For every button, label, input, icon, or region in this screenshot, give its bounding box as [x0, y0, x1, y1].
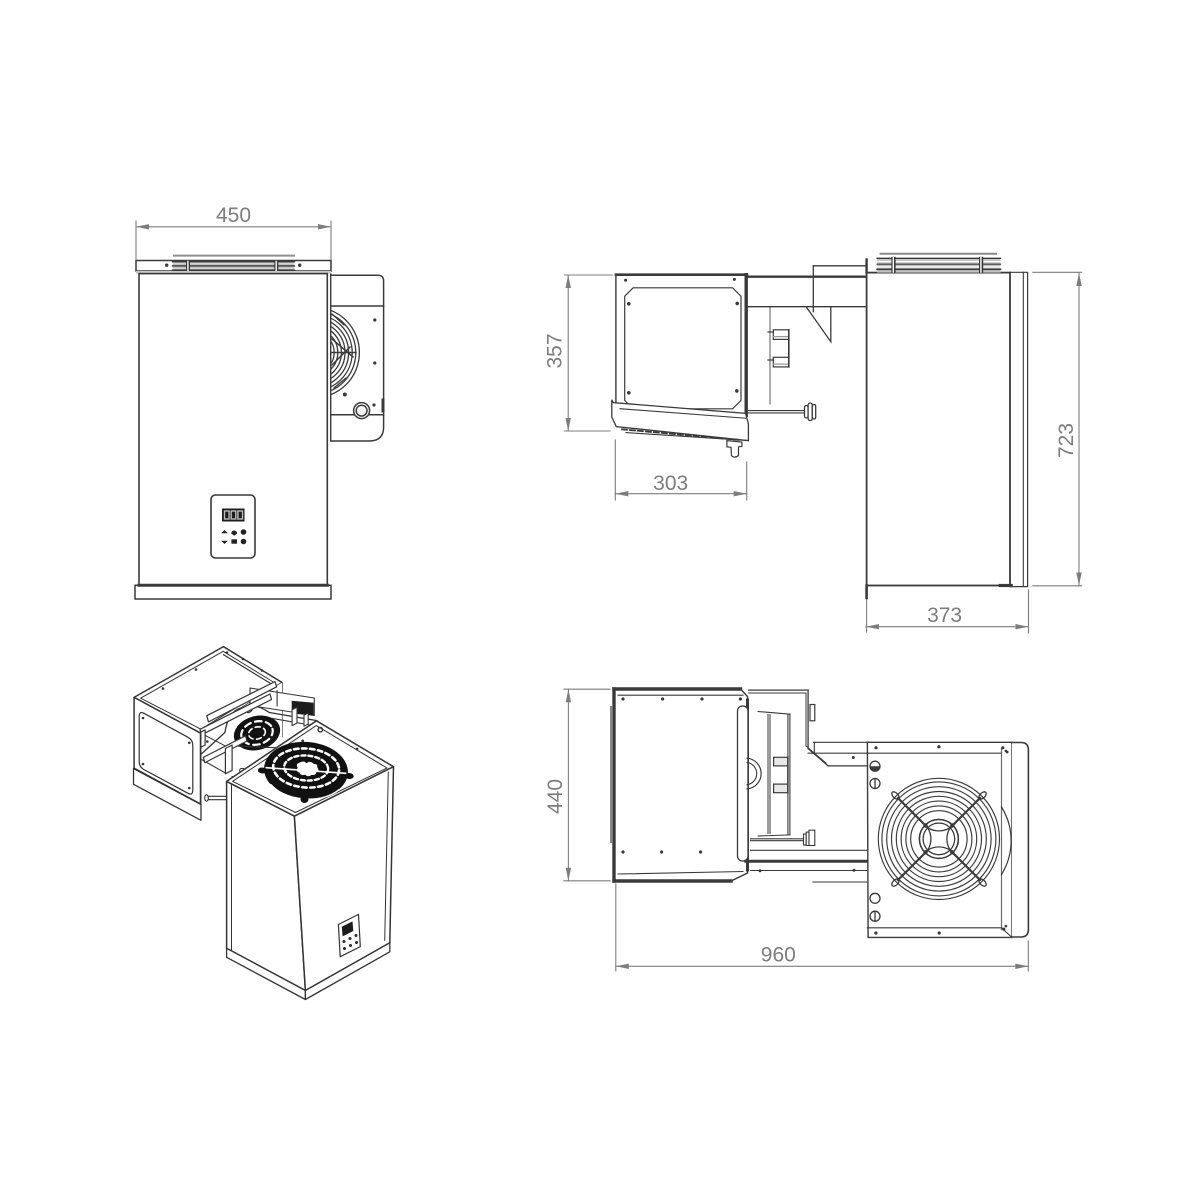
svg-text:303: 303	[653, 472, 688, 495]
svg-text:723: 723	[1055, 423, 1078, 458]
svg-text:373: 373	[927, 604, 962, 627]
svg-text:440: 440	[544, 779, 567, 814]
svg-text:450: 450	[216, 204, 251, 227]
svg-text:357: 357	[544, 333, 567, 368]
svg-text:960: 960	[761, 944, 796, 967]
